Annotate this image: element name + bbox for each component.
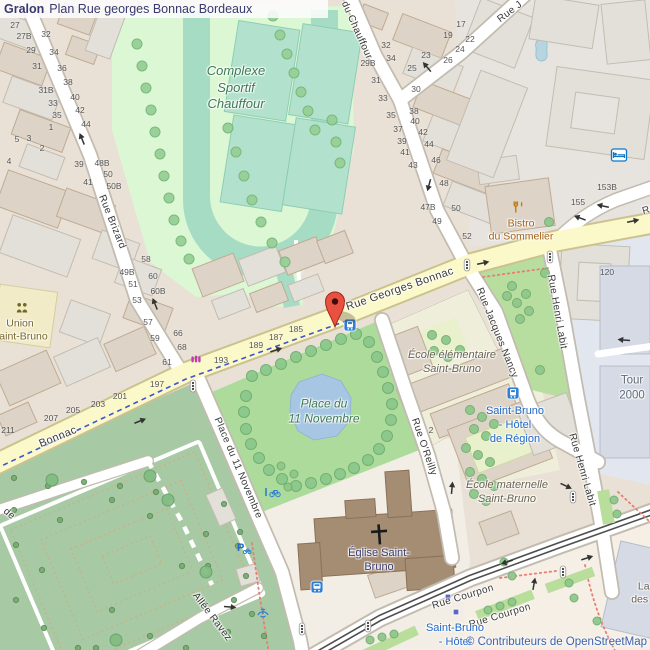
tree-icon (516, 315, 525, 324)
tree-icon (466, 406, 475, 415)
tree-icon (284, 483, 292, 491)
tree-icon (169, 215, 179, 225)
tree-icon (39, 567, 44, 572)
tree-icon (430, 347, 439, 356)
tree-icon (241, 424, 252, 435)
tree-icon (164, 193, 174, 203)
tree-icon (306, 346, 317, 357)
tree-icon (310, 125, 320, 135)
tree-icon (254, 453, 265, 464)
tree-icon (179, 563, 184, 568)
tree-icon (490, 482, 499, 491)
tree-icon (470, 490, 479, 499)
map-canvas[interactable]: P Rue BrizardRue du ChauffourRue JRue Ge… (0, 0, 650, 650)
tree-icon (276, 359, 287, 370)
tree-icon (321, 340, 332, 351)
tree-icon (13, 542, 18, 547)
tree-icon (11, 507, 16, 512)
tree-icon (306, 478, 317, 489)
site-brand: Gralon (4, 2, 44, 16)
tree-icon (541, 269, 550, 278)
tree-icon (146, 105, 156, 115)
tree-icon (462, 444, 471, 453)
tree-icon (109, 607, 114, 612)
tree-icon (482, 497, 491, 506)
tree-icon (296, 87, 306, 97)
map-base-layer: P (0, 0, 650, 650)
tree-icon (613, 510, 621, 518)
tram-stop-marker-icon (445, 594, 451, 600)
tree-icon (264, 465, 275, 476)
tree-icon (243, 573, 248, 578)
tree-icon (239, 407, 250, 418)
tree-icon (117, 483, 122, 488)
tree-icon (474, 451, 483, 460)
tree-icon (335, 158, 345, 168)
tree-icon (183, 645, 188, 650)
tree-icon (231, 147, 241, 157)
tree-icon (335, 469, 346, 480)
tree-icon (289, 68, 299, 78)
tree-icon (374, 444, 385, 455)
traffic-light-icon (190, 380, 196, 392)
building-union-saint-bruno (0, 284, 58, 348)
shop-icon (191, 356, 200, 363)
tree-icon (466, 468, 475, 477)
page-title: Plan Rue georges Bonnac Bordeaux (49, 2, 252, 16)
building-courtyard (571, 92, 620, 134)
tree-icon (137, 61, 147, 71)
tree-icon (349, 463, 360, 474)
tree-icon (275, 30, 285, 40)
tree-icon (442, 336, 451, 345)
tree-icon (159, 171, 169, 181)
tree-icon (261, 633, 266, 638)
tree-icon (387, 399, 398, 410)
tree-icon (153, 489, 158, 494)
tree-icon (93, 645, 98, 650)
tree-icon (470, 425, 479, 434)
tree-icon (13, 597, 18, 602)
tree-icon (277, 462, 285, 470)
tree-icon (484, 606, 492, 614)
tree-icon (41, 625, 46, 630)
tree-icon (378, 633, 386, 641)
tree-icon (81, 479, 86, 484)
tree-icon (246, 439, 257, 450)
tree-icon (75, 645, 80, 650)
tree-icon (390, 630, 398, 638)
tree-icon (221, 501, 226, 506)
tree-icon (482, 432, 491, 441)
tree-icon (478, 475, 487, 484)
tree-icon (382, 431, 393, 442)
tree-icon (11, 475, 16, 480)
tree-icon (496, 602, 504, 610)
tree-icon (303, 106, 313, 116)
tree-icon (109, 497, 114, 502)
tree-icon (508, 282, 517, 291)
tree-icon (256, 217, 266, 227)
small-pond (536, 39, 548, 61)
tree-icon (522, 290, 531, 299)
tree-icon (132, 39, 142, 49)
tree-icon (201, 601, 206, 606)
tree-icon (331, 137, 341, 147)
tree-icon (478, 413, 487, 422)
tree-icon (545, 218, 554, 227)
tree-icon (231, 597, 236, 602)
tree-icon (525, 307, 534, 316)
hotel-icon (612, 149, 627, 161)
tree-icon (176, 236, 186, 246)
tree-icon (327, 115, 337, 125)
traffic-light-icon (570, 491, 576, 503)
tree-icon (486, 458, 495, 467)
tree-icon (267, 238, 277, 248)
tree-icon (536, 366, 545, 375)
tree-icon (490, 420, 499, 429)
tree-icon (150, 127, 160, 137)
tree-icon (282, 49, 292, 59)
tree-icon (223, 123, 233, 133)
tree-icon (144, 470, 156, 482)
tree-icon (184, 254, 194, 264)
tree-icon (336, 334, 347, 345)
bus-stop-icon (311, 581, 323, 593)
tree-icon (241, 391, 252, 402)
tree-icon (261, 365, 272, 376)
tree-icon (503, 292, 512, 301)
tree-icon (277, 474, 288, 485)
tree-icon (239, 171, 249, 181)
tree-icon (110, 634, 122, 646)
tree-icon (291, 352, 302, 363)
tree-icon (280, 257, 290, 267)
tree-icon (513, 299, 522, 308)
tree-icon (162, 494, 174, 506)
traffic-light-icon (365, 620, 371, 632)
tree-icon (247, 195, 257, 205)
tree-icon (372, 352, 383, 363)
tree-icon (290, 470, 298, 478)
tree-icon (366, 636, 374, 644)
tree-icon (141, 83, 151, 93)
traffic-light-icon (464, 259, 470, 271)
tree-icon (57, 517, 62, 522)
tree-icon (46, 474, 58, 486)
tree-icon (444, 353, 453, 362)
tree-icon (249, 611, 254, 616)
traffic-light-icon (560, 566, 566, 578)
tree-icon (456, 346, 465, 355)
tram-stop-marker-icon (453, 609, 459, 615)
traffic-light-icon (299, 623, 305, 635)
tree-icon (593, 617, 601, 625)
tree-icon (200, 566, 212, 578)
traffic-light-icon (547, 251, 553, 263)
tree-icon (383, 383, 394, 394)
attribution-link[interactable]: © Contributeurs de OpenStreetMap (466, 636, 647, 648)
tree-icon (378, 367, 389, 378)
tree-icon (428, 331, 437, 340)
tree-icon (565, 579, 573, 587)
tree-icon (155, 149, 165, 159)
tree-icon (508, 572, 516, 580)
tree-icon (364, 337, 375, 348)
title-bar: GralonPlan Rue georges Bonnac Bordeaux (0, 0, 328, 18)
tree-icon (247, 371, 258, 382)
tree-icon (321, 474, 332, 485)
tree-icon (363, 455, 374, 466)
tree-icon (225, 629, 230, 634)
park-pond (290, 374, 351, 440)
tree-icon (203, 531, 208, 536)
tree-icon (508, 598, 516, 606)
tree-icon (147, 633, 152, 638)
tree-icon (610, 496, 618, 504)
tree-icon (147, 513, 152, 518)
tree-icon (237, 529, 242, 534)
tree-icon (570, 594, 578, 602)
tree-icon (386, 415, 397, 426)
tram-stop-icon (507, 387, 519, 399)
